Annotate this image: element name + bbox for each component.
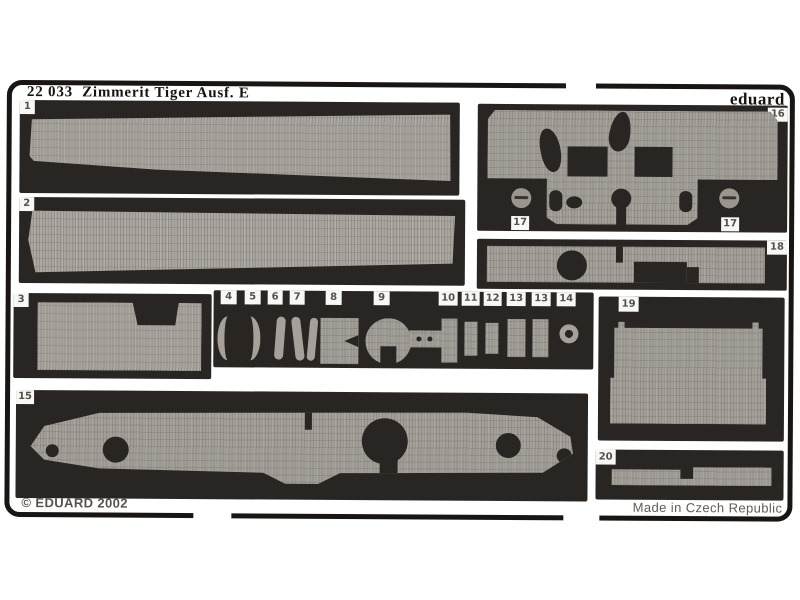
part-8-notch bbox=[344, 335, 358, 347]
part-label-9: 9 bbox=[374, 291, 390, 305]
frame-gap-top bbox=[566, 79, 596, 92]
part-label-2: 2 bbox=[19, 197, 34, 211]
part-10-strip bbox=[441, 319, 457, 363]
part-label-20: 20 bbox=[596, 450, 616, 465]
part-1-zimmerit-panel bbox=[29, 108, 451, 191]
part-15-slit bbox=[305, 406, 312, 430]
fret-region-2: 2 bbox=[19, 197, 466, 286]
product-photo-zimmerit-fret: 22 033 Zimmerit Tiger Ausf. E eduard 1 2… bbox=[0, 0, 800, 600]
part-16-keyhole-stem bbox=[616, 205, 626, 225]
part-17a-slotted-disc bbox=[511, 188, 531, 208]
part-16-pill-cutout-left bbox=[549, 190, 562, 211]
part-label-14: 14 bbox=[557, 292, 576, 306]
part-label-13b: 13 bbox=[532, 292, 551, 306]
part-16-kidney-cutout bbox=[537, 127, 564, 174]
part-label-17a: 17 bbox=[511, 216, 529, 230]
part-4-curved-strip-left bbox=[217, 316, 238, 360]
part-18-notch-step bbox=[687, 267, 699, 283]
part-15-hole-2 bbox=[103, 437, 129, 463]
part-6-strip bbox=[274, 316, 286, 360]
part-15-hole-4 bbox=[557, 448, 572, 463]
part-9-disc bbox=[365, 318, 411, 364]
made-in-text: Made in Czech Republic bbox=[622, 500, 782, 516]
part-label-1: 1 bbox=[20, 100, 35, 114]
part-15-zimmerit-plate bbox=[28, 404, 577, 491]
copyright-text: © EDUARD 2002 bbox=[21, 495, 128, 511]
part-label-19: 19 bbox=[619, 297, 639, 312]
part-18-slit bbox=[616, 247, 623, 263]
screw-slot bbox=[722, 196, 736, 199]
part-8-plate bbox=[320, 318, 358, 364]
part-7-strip-a bbox=[291, 316, 305, 361]
part-label-6: 6 bbox=[268, 291, 283, 305]
part-9-notch bbox=[380, 346, 396, 364]
part-16-zimmerit-plate bbox=[487, 110, 778, 226]
part-14-washer bbox=[559, 324, 578, 343]
part-label-8: 8 bbox=[326, 291, 342, 305]
part-18-hole bbox=[557, 250, 587, 280]
part-13a-strip bbox=[507, 319, 525, 357]
fret-region-20: 20 bbox=[595, 450, 783, 501]
part-15-hole-3 bbox=[496, 433, 521, 458]
part-label-11: 11 bbox=[462, 292, 480, 306]
fret-region-16-17: 16 17 17 bbox=[477, 104, 788, 233]
part-20-zimmerit-strip bbox=[612, 467, 772, 487]
fret-region-1: 1 bbox=[19, 100, 460, 196]
part-13b-strip bbox=[532, 319, 548, 357]
part-label-12: 12 bbox=[484, 292, 502, 306]
part-16-oval-cutout bbox=[566, 196, 582, 208]
part-16-square-cutout-right bbox=[634, 147, 672, 177]
fret-region-19: 19 bbox=[598, 297, 785, 442]
photo-etch-sheet: 22 033 Zimmerit Tiger Ausf. E eduard 1 2… bbox=[0, 0, 800, 600]
page-title: Zimmerit Tiger Ausf. E bbox=[82, 84, 250, 101]
part-label-15: 15 bbox=[16, 390, 34, 404]
part-7-strip-b bbox=[306, 318, 318, 362]
part-10-hole-b bbox=[427, 336, 432, 341]
part-label-10: 10 bbox=[439, 292, 458, 306]
screw-slot bbox=[514, 196, 528, 199]
catalog-number: 22 033 bbox=[27, 84, 73, 100]
part-15-hole-1 bbox=[46, 444, 59, 457]
part-19-zimmerit-plate bbox=[610, 322, 767, 425]
part-2-zimmerit-panel bbox=[27, 205, 457, 278]
part-18-zimmerit-strip bbox=[487, 246, 765, 284]
part-label-18: 18 bbox=[767, 241, 787, 255]
part-12-strip bbox=[485, 323, 498, 354]
fret-region-3: 3 bbox=[13, 293, 212, 379]
part-3-zimmerit-plate bbox=[37, 302, 201, 371]
part-10-arm bbox=[409, 330, 445, 347]
part-17b-slotted-disc bbox=[719, 188, 739, 208]
part-label-13a: 13 bbox=[507, 292, 526, 306]
part-5-curved-strip-right bbox=[239, 316, 260, 360]
part-16-square-cutout-left bbox=[567, 146, 607, 176]
part-18-notch bbox=[634, 262, 687, 283]
part-label-5: 5 bbox=[245, 290, 261, 304]
fret-region-15: 15 bbox=[15, 390, 588, 501]
part-11-strip bbox=[464, 322, 477, 356]
frame-gap-bottom-right bbox=[563, 511, 599, 524]
part-label-17b: 17 bbox=[721, 217, 739, 231]
fret-region-4-14: 4 5 6 7 8 9 10 11 12 13 13 14 bbox=[213, 290, 593, 369]
part-label-7: 7 bbox=[290, 291, 305, 305]
part-label-3: 3 bbox=[14, 293, 29, 307]
fret-region-18: 18 bbox=[477, 239, 787, 291]
part-16-pill-cutout-right bbox=[679, 191, 692, 212]
part-16-leaf-cutout bbox=[607, 110, 634, 153]
part-label-4: 4 bbox=[221, 290, 237, 304]
part-10-hole-a bbox=[416, 336, 421, 341]
part-15-keyhole-stem bbox=[380, 458, 398, 490]
frame-gap-bottom-left bbox=[193, 509, 231, 522]
